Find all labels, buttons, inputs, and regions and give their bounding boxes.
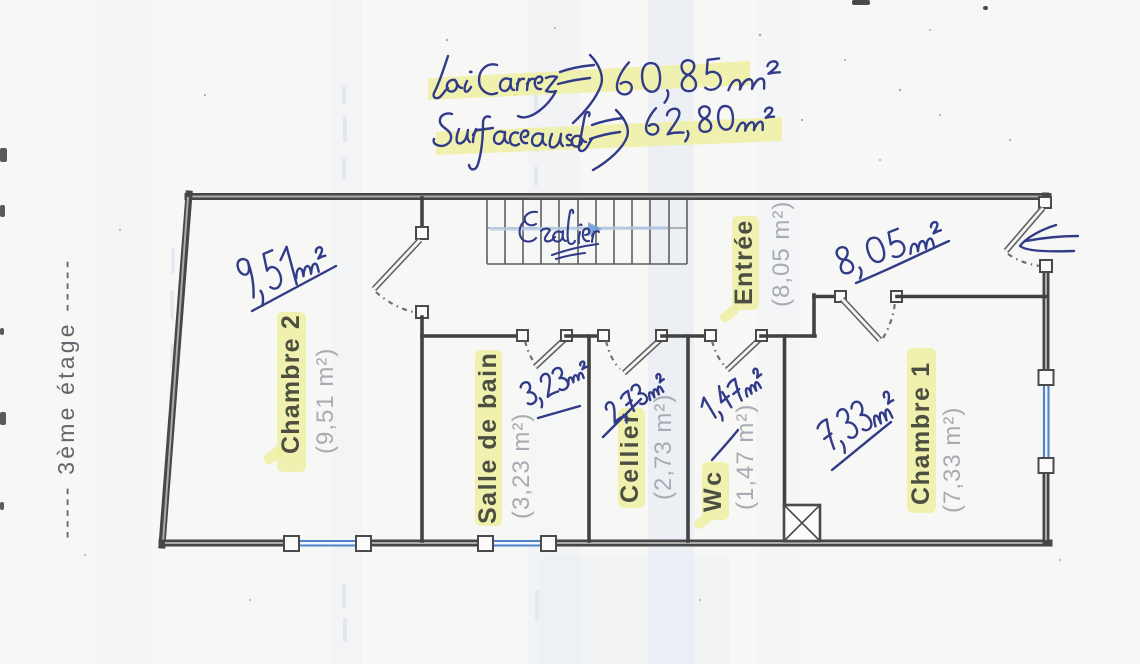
svg-text:(9,51 m²): (9,51 m²) <box>312 348 339 454</box>
svg-text:(3,23 m²): (3,23 m²) <box>508 413 535 519</box>
svg-text:Cellier: Cellier <box>616 411 644 503</box>
svg-text:Wc: Wc <box>699 470 727 513</box>
svg-text:Entrée: Entrée <box>730 219 758 305</box>
svg-text:(1,47 m²): (1,47 m²) <box>732 404 759 510</box>
svg-text:(7,33 m²): (7,33 m²) <box>939 407 966 513</box>
svg-text:----- 3ème étage -----: ----- 3ème étage ----- <box>53 257 79 538</box>
svg-text:Chambre 2: Chambre 2 <box>277 314 305 454</box>
svg-text:Salle de bain: Salle de bain <box>474 352 502 524</box>
svg-text:Chambre 1: Chambre 1 <box>907 361 935 505</box>
svg-text:(2,73 m²): (2,73 m²) <box>650 394 677 500</box>
svg-text:(8,05 m²): (8,05 m²) <box>768 201 795 307</box>
